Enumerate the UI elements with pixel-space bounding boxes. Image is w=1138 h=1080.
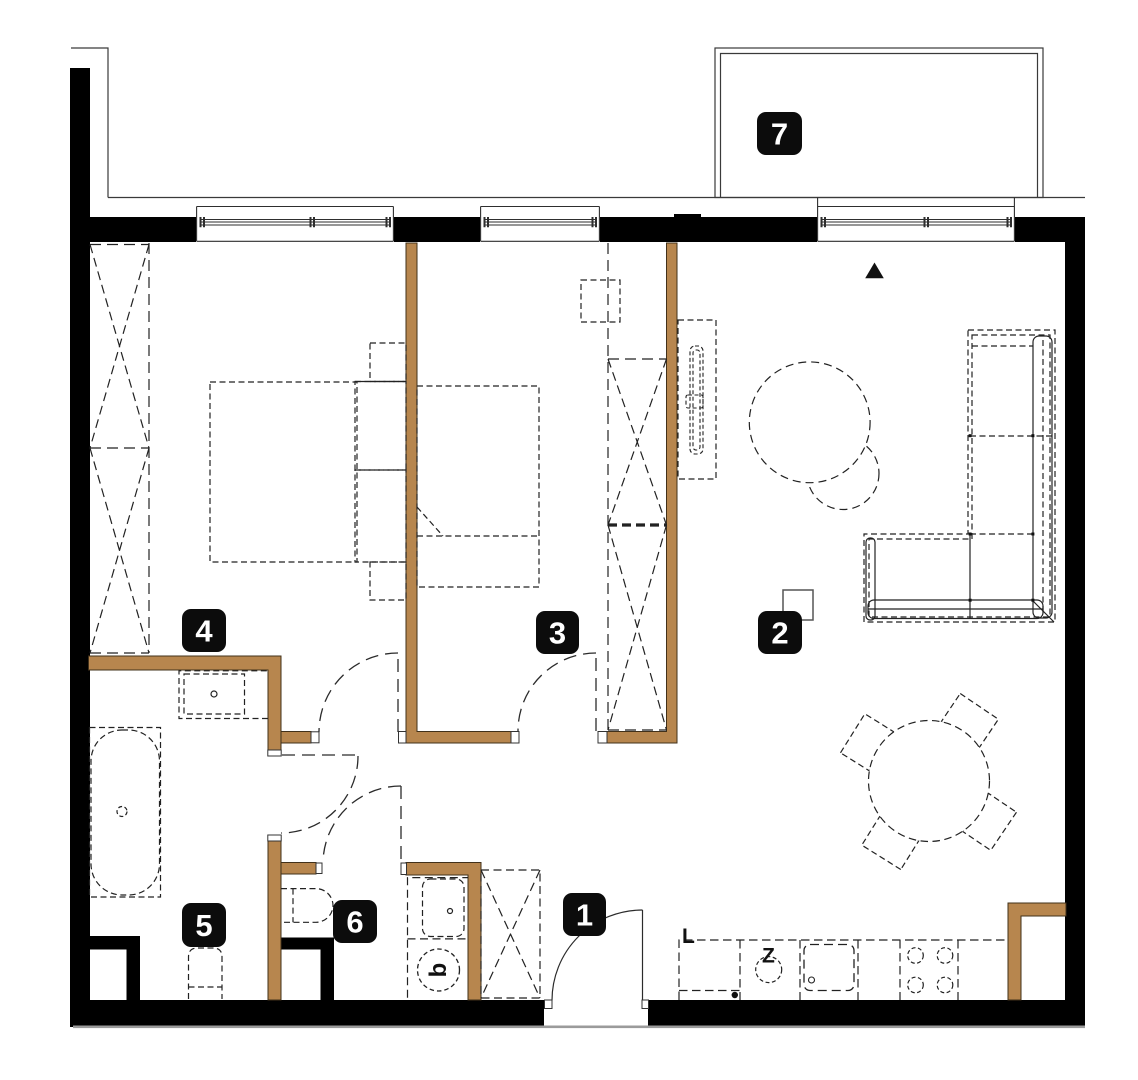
svg-text:7: 7 [771,117,788,152]
svg-text:L: L [682,925,695,948]
svg-text:4: 4 [195,614,213,649]
svg-text:2: 2 [771,616,788,651]
svg-text:b: b [425,963,452,978]
svg-text:6: 6 [346,905,363,940]
svg-text:1: 1 [576,898,593,933]
svg-text:5: 5 [195,908,212,943]
svg-text:3: 3 [549,616,566,651]
svg-text:Z: Z [762,945,775,968]
